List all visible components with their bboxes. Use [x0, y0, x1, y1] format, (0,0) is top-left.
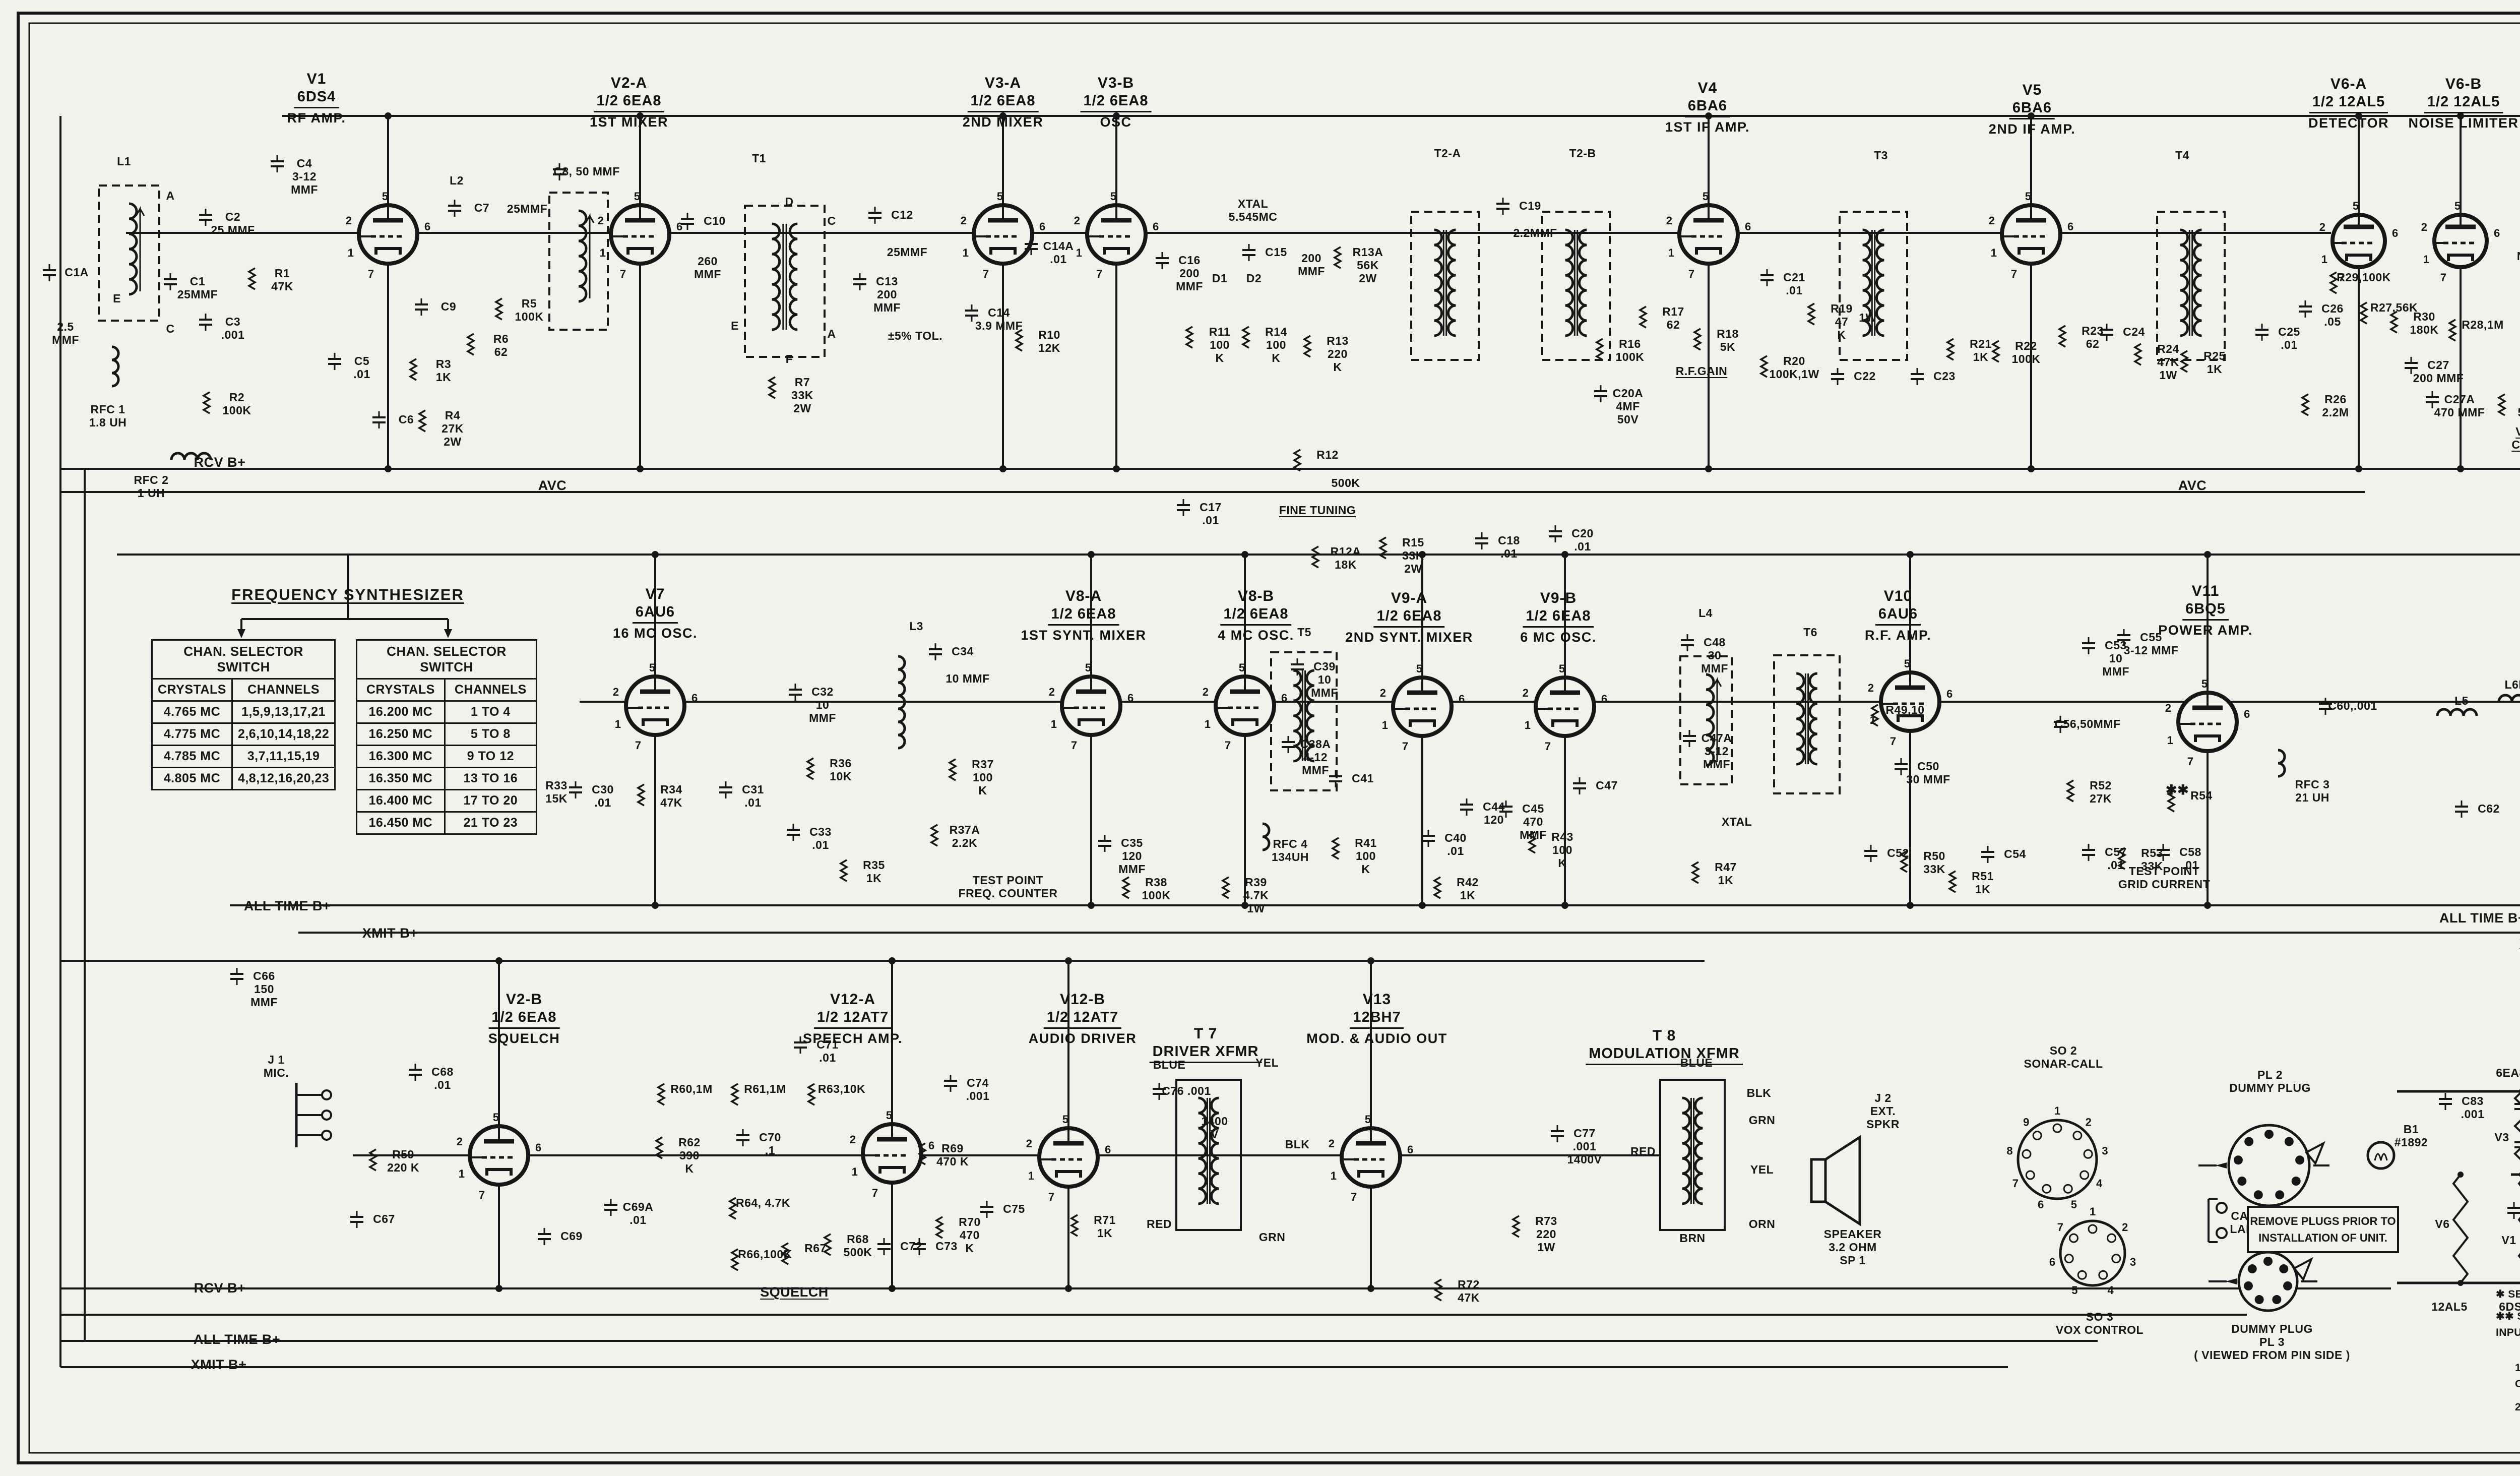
component-label-c34: C34	[952, 645, 974, 658]
component-label-l6b: L6B	[2505, 679, 2520, 692]
svg-text:5: 5	[1239, 661, 1245, 674]
component-label-c56-50mmf: C56,50MMF	[2054, 718, 2120, 731]
component-label-r54: R54	[2190, 789, 2213, 803]
svg-text:7: 7	[2187, 755, 2193, 768]
component-label-c74: C74 .001	[966, 1077, 990, 1103]
stage-label-v6-a: V6-A1/2 12AL5DETECTOR	[2308, 76, 2389, 131]
stage-label-v10: V106AU6R.F. AMP.	[1865, 588, 1931, 643]
component-label-r3: R3 1K	[436, 358, 451, 384]
component-label-c47a: C47A 3-12 MMF	[1702, 732, 1732, 771]
svg-text:3: 3	[2102, 1144, 2108, 1157]
component-label-r43: R43 100 K	[1551, 831, 1573, 870]
component-label-25mmf: 25MMF	[887, 246, 927, 259]
svg-text:8: 8	[2006, 1144, 2012, 1157]
svg-text:6: 6	[2392, 227, 2398, 239]
component-label-test-point: TEST POINT FREQ. COUNTER	[959, 874, 1058, 900]
component-label-c15: C15	[1265, 246, 1287, 259]
component-label-r18: R18 5K	[1717, 328, 1739, 354]
component-label-rfc-2: RFC 2 1 UH	[134, 474, 169, 500]
component-label-r34: R34 47K	[660, 783, 682, 810]
component-label-b1: B1 #1892	[2395, 1123, 2428, 1149]
table-header: CHAN. SELECTOR SWITCH	[357, 640, 537, 679]
component-label-r29-100k: R29,100K	[2337, 271, 2391, 284]
channel-selector-table-1: CHAN. SELECTOR SWITCHCRYSTALSCHANNELS4.7…	[151, 639, 336, 790]
svg-text:5: 5	[2071, 1198, 2077, 1211]
component-label-c10: C10	[704, 215, 726, 228]
svg-text:7: 7	[2012, 1177, 2019, 1190]
component-label-j-2: J 2 EXT. SPKR	[1866, 1092, 1900, 1131]
svg-text:7: 7	[1225, 739, 1231, 752]
component-label-c17: C17 .01	[1200, 501, 1222, 527]
component-label-c33: C33 .01	[809, 826, 832, 852]
component-label-r64-4-7k: R64, 4.7K	[736, 1197, 790, 1210]
component-label-c60-001: C60,.001	[2328, 700, 2377, 713]
svg-text:2: 2	[2421, 221, 2427, 233]
component-label-f: F	[786, 353, 793, 366]
component-label-c27: C27 200 MMF	[2413, 359, 2464, 385]
svg-text:1: 1	[1331, 1170, 1337, 1182]
svg-text:1: 1	[2090, 1205, 2096, 1218]
component-label-r52: R52 27K	[2090, 779, 2112, 806]
component-label-c69: C69	[560, 1230, 583, 1243]
svg-text:5: 5	[1904, 657, 1910, 670]
component-label-25mmf: 25MMF	[507, 203, 547, 216]
component-label-a: A	[166, 190, 174, 203]
component-label-volume: VOLUME CONTROL	[2511, 425, 2520, 452]
svg-text:7: 7	[368, 268, 374, 280]
component-label-d2: D2	[1246, 272, 1262, 285]
component-label-r14: R14 100 K	[1265, 326, 1287, 364]
component-label-r53: R53 33K	[2141, 847, 2163, 873]
component-label-grn: GRN	[1259, 1231, 1286, 1244]
component-label-r61-1m: R61,1M	[744, 1083, 786, 1096]
svg-text:2: 2	[2086, 1116, 2092, 1128]
component-label-c24: C24	[2123, 326, 2145, 339]
svg-text:1: 1	[348, 247, 354, 259]
svg-text:4: 4	[2096, 1177, 2103, 1190]
component-label-xtal: XTAL 5.545MC	[1229, 198, 1278, 224]
component-label-xmit-b+: XMIT B+	[191, 1357, 247, 1372]
component-label-r16: R16 100K	[1616, 338, 1645, 364]
channel-selector-table-2: CHAN. SELECTOR SWITCHCRYSTALSCHANNELS16.…	[356, 639, 537, 835]
component-label-r6: R6 62	[493, 333, 509, 359]
component-label-c5: C5 .01	[353, 355, 370, 381]
svg-text:5: 5	[382, 190, 388, 203]
svg-text:7: 7	[1545, 740, 1551, 753]
svg-text:5: 5	[649, 661, 655, 674]
component-label-c40: C40 .01	[1444, 832, 1467, 858]
svg-text:7: 7	[2440, 271, 2446, 284]
component-label-squelch: SQUELCH	[760, 1284, 829, 1300]
component-label-v6: V6	[2435, 1218, 2449, 1231]
svg-text:2: 2	[1868, 682, 1874, 694]
component-label-c50: C50 30 MMF	[1906, 760, 1950, 786]
stage-label-v1: V16DS4RF AMP.	[287, 71, 346, 126]
svg-text:6: 6	[1407, 1143, 1413, 1156]
component-label-c4: C4 3-12 MMF	[291, 157, 318, 196]
component-label-r24: R24 47K 1W	[2157, 343, 2179, 382]
svg-text:5: 5	[1085, 661, 1091, 674]
component-label-260: 260 MMF	[694, 255, 721, 281]
note-item-1: 2. THIS DRAWING IS SUBJECT TO CHANGE WIT…	[2515, 1399, 2520, 1416]
component-label-r73: R73 220 1W	[1535, 1215, 1557, 1254]
component-label-d1: D1	[1212, 272, 1227, 285]
component-label-c52: C52	[1887, 847, 1909, 860]
component-label-r39: R39 4.7K 1W	[1243, 876, 1269, 915]
component-label-r70: R70 470 K	[959, 1216, 981, 1255]
component-label-r31: R31 500K	[2518, 393, 2520, 419]
component-label-c44: C44 120	[1483, 801, 1505, 827]
component-label-r59: R59 220 K	[387, 1148, 419, 1175]
stage-label-v3-a: V3-A1/2 6EA82ND MIXER	[963, 75, 1044, 130]
component-label-12al5: 12AL5	[2431, 1301, 2468, 1314]
frequency-synthesizer-title: FREQUENCY SYNTHESIZER	[231, 586, 464, 604]
component-label-avc: AVC	[538, 478, 567, 493]
svg-text:2: 2	[346, 214, 352, 227]
component-label-r38: R38 100K	[1142, 876, 1171, 902]
svg-text:5: 5	[1416, 662, 1422, 675]
component-label-l5: L5	[2454, 695, 2469, 708]
svg-text:5: 5	[2201, 678, 2208, 690]
component-label-c76-001: C76 .001	[1162, 1085, 1211, 1098]
component-label-e: E	[113, 292, 121, 305]
svg-text:2: 2	[613, 686, 619, 698]
component-label-rcv-b+: RCV B+	[194, 455, 246, 470]
svg-text:5: 5	[634, 190, 640, 203]
svg-text:6: 6	[535, 1141, 541, 1154]
component-label-so-3: SO 3 VOX CONTROL	[2056, 1311, 2144, 1337]
component-label-all-time-b+: ALL TIME B+	[244, 898, 331, 913]
component-label-t4: T4	[2175, 149, 2189, 162]
table-row: 4.775 MC2,6,10,14,18,22	[152, 723, 335, 746]
component-label-c7: C7	[474, 202, 489, 215]
svg-text:1: 1	[1051, 718, 1057, 730]
component-label-c77: C77 .001 1400V	[1567, 1127, 1602, 1166]
component-label-e: E	[731, 320, 739, 333]
component-label-r25: R25 1K	[2203, 350, 2226, 376]
component-label-v1: V1	[2501, 1234, 2516, 1247]
component-label-r49-10: R49,10	[1885, 704, 1924, 717]
component-label-r62: R62 390 K	[678, 1136, 701, 1175]
legend-item-0: ✱ SELECTED AT FACTORY FOR "S" METER CALI…	[2496, 1286, 2520, 1303]
component-label-c23: C23	[1933, 370, 1956, 383]
component-label-c47: C47	[1596, 779, 1618, 792]
table-row: 16.400 MC17 TO 20	[357, 790, 537, 812]
svg-text:1: 1	[1205, 718, 1211, 730]
svg-text:1: 1	[2167, 734, 2173, 747]
component-label-d: D	[785, 196, 793, 209]
component-label-r67: R67	[804, 1242, 827, 1255]
table-row: 4.785 MC3,7,11,15,19	[152, 746, 335, 768]
component-label-c20: C20 .01	[1571, 527, 1594, 553]
component-label-r13: R13 220 K	[1327, 335, 1349, 374]
component-label-r20: R20 100K,1W	[1769, 355, 1819, 381]
svg-text:7: 7	[1048, 1191, 1054, 1203]
component-label-red: RED	[1630, 1145, 1656, 1158]
svg-text:2: 2	[1049, 686, 1055, 698]
svg-text:2: 2	[2165, 702, 2171, 714]
component-label-t2-b: T2-B	[1569, 147, 1596, 160]
component-label-c75: C75	[1003, 1203, 1025, 1216]
svg-text:6: 6	[928, 1139, 934, 1152]
component-label-r5: R5 100K	[515, 297, 544, 324]
component-label-speaker: SPEAKER 3.2 OHM SP 1	[1824, 1228, 1882, 1267]
component-label-r60-1m: R60,1M	[670, 1083, 713, 1096]
component-label-brn: BRN	[1679, 1232, 1705, 1245]
svg-text:7: 7	[620, 268, 626, 280]
svg-text:6: 6	[1946, 688, 1952, 700]
svg-text:1: 1	[600, 247, 606, 259]
svg-text:1: 1	[963, 247, 969, 259]
svg-text:6: 6	[2067, 220, 2073, 233]
component-label-c6: C6	[399, 413, 414, 426]
component-label-orn: ORN	[1749, 1218, 1776, 1231]
svg-text:2: 2	[1026, 1137, 1032, 1150]
component-label-c8-50-mmf: C8, 50 MMF	[553, 165, 620, 178]
svg-text:1: 1	[2321, 253, 2327, 266]
component-label-c27a: C27A 470 MMF	[2434, 393, 2485, 419]
component-label-2-5: 2.5 MMF	[52, 321, 79, 347]
svg-text:5: 5	[1110, 190, 1116, 203]
svg-text:7: 7	[872, 1187, 878, 1199]
component-label-r37a: R37A 2.2K	[950, 824, 980, 850]
component-label-c25: C25 .01	[2278, 326, 2300, 352]
component-label-l1: L1	[117, 155, 131, 168]
component-label-c1: C1 25MMF	[177, 275, 218, 301]
component-label-c57: C57 .01	[2105, 846, 2127, 872]
svg-text:6: 6	[1105, 1143, 1111, 1156]
stage-label-v12-b: V12-B1/2 12AT7AUDIO DRIVER	[1029, 991, 1137, 1047]
svg-text:2: 2	[961, 214, 967, 227]
component-label-all-time-b+: ALL TIME B+	[2439, 910, 2520, 926]
component-label-r19: R19 47 K	[1831, 302, 1853, 341]
component-label-c2: C2 25 MMF	[211, 211, 255, 237]
svg-text:1: 1	[1668, 247, 1674, 259]
svg-text:7: 7	[1071, 739, 1077, 752]
component-label-r41: R41 100 K	[1355, 837, 1377, 876]
stage-label-v4: V46BA61ST IF AMP.	[1665, 80, 1750, 135]
svg-text:2: 2	[2319, 221, 2325, 233]
component-label-c22: C22	[1854, 370, 1876, 383]
component-label-red: RED	[1147, 1218, 1172, 1231]
svg-text:1: 1	[1076, 247, 1082, 259]
component-label-r-f-gain: R.F.GAIN	[1676, 365, 1727, 378]
svg-text:6: 6	[691, 692, 698, 704]
svg-text:6: 6	[1281, 692, 1287, 704]
stage-label-v8-b: V8-B1/2 6EA84 MC OSC.	[1218, 588, 1294, 643]
component-label-c1a: C1A	[65, 266, 89, 279]
component-label-r72: R72 47K	[1458, 1278, 1480, 1305]
component-label-a: A	[827, 328, 836, 341]
stage-label-v13: V1312BH7MOD. & AUDIO OUT	[1306, 991, 1447, 1047]
svg-text:2: 2	[850, 1133, 856, 1146]
component-label-r28-1m: R28,1M	[2462, 319, 2504, 332]
component-label-c3: C3 .001	[221, 316, 245, 342]
svg-text:7: 7	[1351, 1191, 1357, 1203]
svg-text:6: 6	[2494, 227, 2500, 239]
svg-text:3: 3	[2130, 1256, 2136, 1268]
svg-text:6: 6	[1127, 692, 1133, 704]
svg-text:1: 1	[1382, 719, 1388, 731]
component-label-r71: R71 1K	[1094, 1214, 1116, 1240]
svg-text:1: 1	[852, 1165, 858, 1178]
component-label-r22: R22 100K	[2012, 340, 2041, 366]
component-label-c13: C13 200 MMF	[873, 275, 901, 314]
component-label-t2-a: T2-A	[1434, 147, 1461, 160]
note-item-0: 1. UNLESS OTHERWISE INDICATED ALL RESIST…	[2515, 1360, 2520, 1392]
col-channels: CHANNELS	[232, 679, 335, 701]
component-label-2-2mmf: 2.2MMF	[1513, 227, 1557, 240]
component-label-l2: L2	[450, 174, 464, 188]
component-label-t6: T6	[1803, 626, 1817, 639]
svg-text:6: 6	[2038, 1198, 2044, 1211]
component-label-c: C	[827, 215, 836, 228]
stage-label-v5: V56BA62ND IF AMP.	[1989, 82, 2076, 137]
svg-text:2: 2	[1523, 687, 1529, 699]
col-crystals: CRYSTALS	[357, 679, 445, 701]
component-label-r17: R17 62	[1662, 305, 1684, 332]
component-label-pl-2: PL 2 DUMMY PLUG	[2229, 1069, 2311, 1095]
svg-text:5: 5	[493, 1111, 499, 1124]
component-label-dummy-plug: DUMMY PLUG PL 3 ( VIEWED FROM PIN SIDE )	[2194, 1323, 2350, 1362]
component-label-t3: T3	[1874, 149, 1888, 162]
component-label-v3: V3	[2494, 1131, 2509, 1144]
component-label-rcv-b+: RCV B+	[194, 1280, 246, 1296]
component-label-200: 200 MMF	[1298, 252, 1325, 278]
svg-text:2: 2	[1989, 214, 1995, 227]
stage-label-v3-b: V3-B1/2 6EA8OSC	[1081, 75, 1152, 130]
table-row: 16.200 MC1 TO 4	[357, 701, 537, 723]
svg-text:7: 7	[1688, 268, 1694, 280]
component-label-avc: AVC	[2178, 478, 2207, 493]
svg-text:4: 4	[2107, 1284, 2114, 1297]
svg-text:6: 6	[424, 220, 430, 233]
svg-text:2: 2	[1666, 214, 1672, 227]
component-label-so-2: SO 2 SONAR-CALL	[2024, 1044, 2103, 1071]
component-label-r4: R4 27K 2W	[442, 409, 464, 448]
component-label-c20a: C20A 4MF 50V	[1613, 387, 1644, 426]
component-label-c35: C35 120 MMF	[1118, 837, 1146, 876]
svg-text:2: 2	[598, 214, 604, 227]
component-label-sw-1: SW 1 NOISE LIMITER	[2517, 237, 2520, 263]
component-label-c70: C70 .1	[759, 1131, 781, 1157]
component-label-c32: C32 10 MMF	[809, 686, 836, 724]
component-label-c26: C26 .05	[2321, 302, 2344, 329]
component-label-r47: R47 1K	[1715, 861, 1737, 887]
remove-plugs-note: REMOVE PLUGS PRIOR TOINSTALLATION OF UNI…	[2247, 1206, 2399, 1253]
table-row: 4.805 MC4,8,12,16,20,23	[152, 768, 335, 790]
stage-label-v8-a: V8-A1/2 6EA81ST SYNT. MIXER	[1021, 588, 1146, 643]
component-label-xtal: XTAL	[1722, 816, 1752, 829]
component-label-c: C	[166, 323, 174, 336]
component-label-r26: R26 2.2M	[2322, 393, 2349, 419]
schematic-page: 2561725617256172561725617256172561725617…	[0, 0, 2520, 1476]
component-label-r66-100k: R66,100K	[738, 1248, 792, 1261]
table-row: 16.450 MC21 TO 23	[357, 812, 537, 834]
component-label-c45: C45 470 MMF	[1520, 803, 1547, 841]
component-label-l4: L4	[1698, 607, 1713, 620]
component-label-c73: C73	[935, 1240, 958, 1253]
component-label-c38a: C38A 4-12 MMF	[1300, 738, 1331, 777]
component-label-xmit-b+: XMIT B+	[362, 926, 418, 941]
svg-text:7: 7	[479, 1189, 485, 1201]
stage-label-v12-a: V12-A1/2 12AT7SPEECH AMP.	[803, 991, 903, 1047]
table-row: 16.300 MC9 TO 12	[357, 746, 537, 768]
component-label-c16: C16 200 MMF	[1176, 254, 1203, 293]
component-label-c69a: C69A .01	[623, 1201, 654, 1227]
svg-text:2: 2	[1203, 686, 1209, 698]
component-label-c41: C41	[1352, 772, 1374, 785]
svg-text:5: 5	[1365, 1113, 1371, 1126]
component-label-1w: 1W	[1859, 312, 1877, 325]
svg-text:2: 2	[2122, 1221, 2128, 1234]
table-row: 4.765 MC1,5,9,13,17,21	[152, 701, 335, 723]
component-label-rfc-1: RFC 1 1.8 UH	[89, 403, 127, 429]
component-label-r23: R23 62	[2082, 325, 2104, 351]
svg-text:1: 1	[615, 718, 621, 730]
svg-text:7: 7	[1096, 268, 1102, 280]
svg-text:5: 5	[2025, 190, 2031, 203]
svg-text:6: 6	[1153, 220, 1159, 233]
component-label-fine-tuning: FINE TUNING	[1279, 504, 1356, 517]
table-header: CHAN. SELECTOR SWITCH	[152, 640, 335, 679]
component-label-t5: T5	[1297, 626, 1311, 639]
component-label-r69: R69 470 K	[936, 1142, 969, 1168]
svg-text:1: 1	[459, 1167, 465, 1180]
legend-item-1: ✱✱ SELECTED AT FACTORY FOR 5 WATTS MAXIM…	[2496, 1309, 2520, 1340]
svg-text:5: 5	[886, 1109, 892, 1122]
col-crystals: CRYSTALS	[152, 679, 232, 701]
component-label-500k: 500K	[1332, 477, 1360, 490]
component-label-c66: C66 150 MMF	[250, 970, 278, 1009]
component-label-r11: R11 100 K	[1209, 326, 1230, 364]
svg-text:6: 6	[676, 220, 682, 233]
svg-text:5: 5	[2071, 1284, 2077, 1297]
component-label-c54: C54	[2004, 848, 2026, 861]
svg-text:6: 6	[2049, 1256, 2055, 1268]
component-label--: ✱✱	[2166, 782, 2189, 797]
svg-text:6: 6	[1039, 220, 1045, 233]
component-label-r50: R50 33K	[1923, 850, 1945, 876]
component-label-6ea8: 6EA8	[2496, 1067, 2520, 1080]
component-label-blk: BLK	[1285, 1138, 1310, 1151]
component-label-c62: C62	[2478, 803, 2500, 816]
component-label-c12: C12	[891, 209, 913, 222]
svg-text:2: 2	[457, 1135, 463, 1148]
component-label-c19: C19	[1519, 200, 1541, 213]
component-label-r12a: R12A 18K	[1331, 545, 1361, 572]
component-label-r36: R36 10K	[830, 757, 852, 783]
component-label-c14: C14 3.9 MMF	[975, 306, 1023, 333]
svg-text:5: 5	[1703, 190, 1709, 203]
svg-text:7: 7	[1890, 735, 1896, 748]
svg-text:9: 9	[2023, 1116, 2029, 1128]
component-label-c31: C31 .01	[742, 783, 764, 810]
stage-label-v2-a: V2-A1/2 6EA81ST MIXER	[590, 75, 668, 130]
component-label-rfc-3: RFC 3 21 UH	[2295, 778, 2330, 805]
stage-label-v2-b: V2-B1/2 6EA8SQUELCH	[488, 991, 560, 1047]
component-label-r7: R7 33K 2W	[791, 376, 813, 415]
svg-text:2: 2	[1380, 687, 1386, 699]
svg-text:7: 7	[635, 739, 641, 752]
component-label-t1: T1	[752, 152, 766, 165]
component-label-r15: R15 33K 2W	[1402, 536, 1424, 575]
component-label-r30: R30 180K	[2410, 311, 2439, 337]
component-label-10-mmf: 10 MMF	[946, 672, 989, 686]
svg-text:5: 5	[997, 190, 1003, 203]
component-label-r13a: R13A 56K 2W	[1353, 246, 1383, 285]
component-label-blk: BLK	[1747, 1087, 1772, 1100]
